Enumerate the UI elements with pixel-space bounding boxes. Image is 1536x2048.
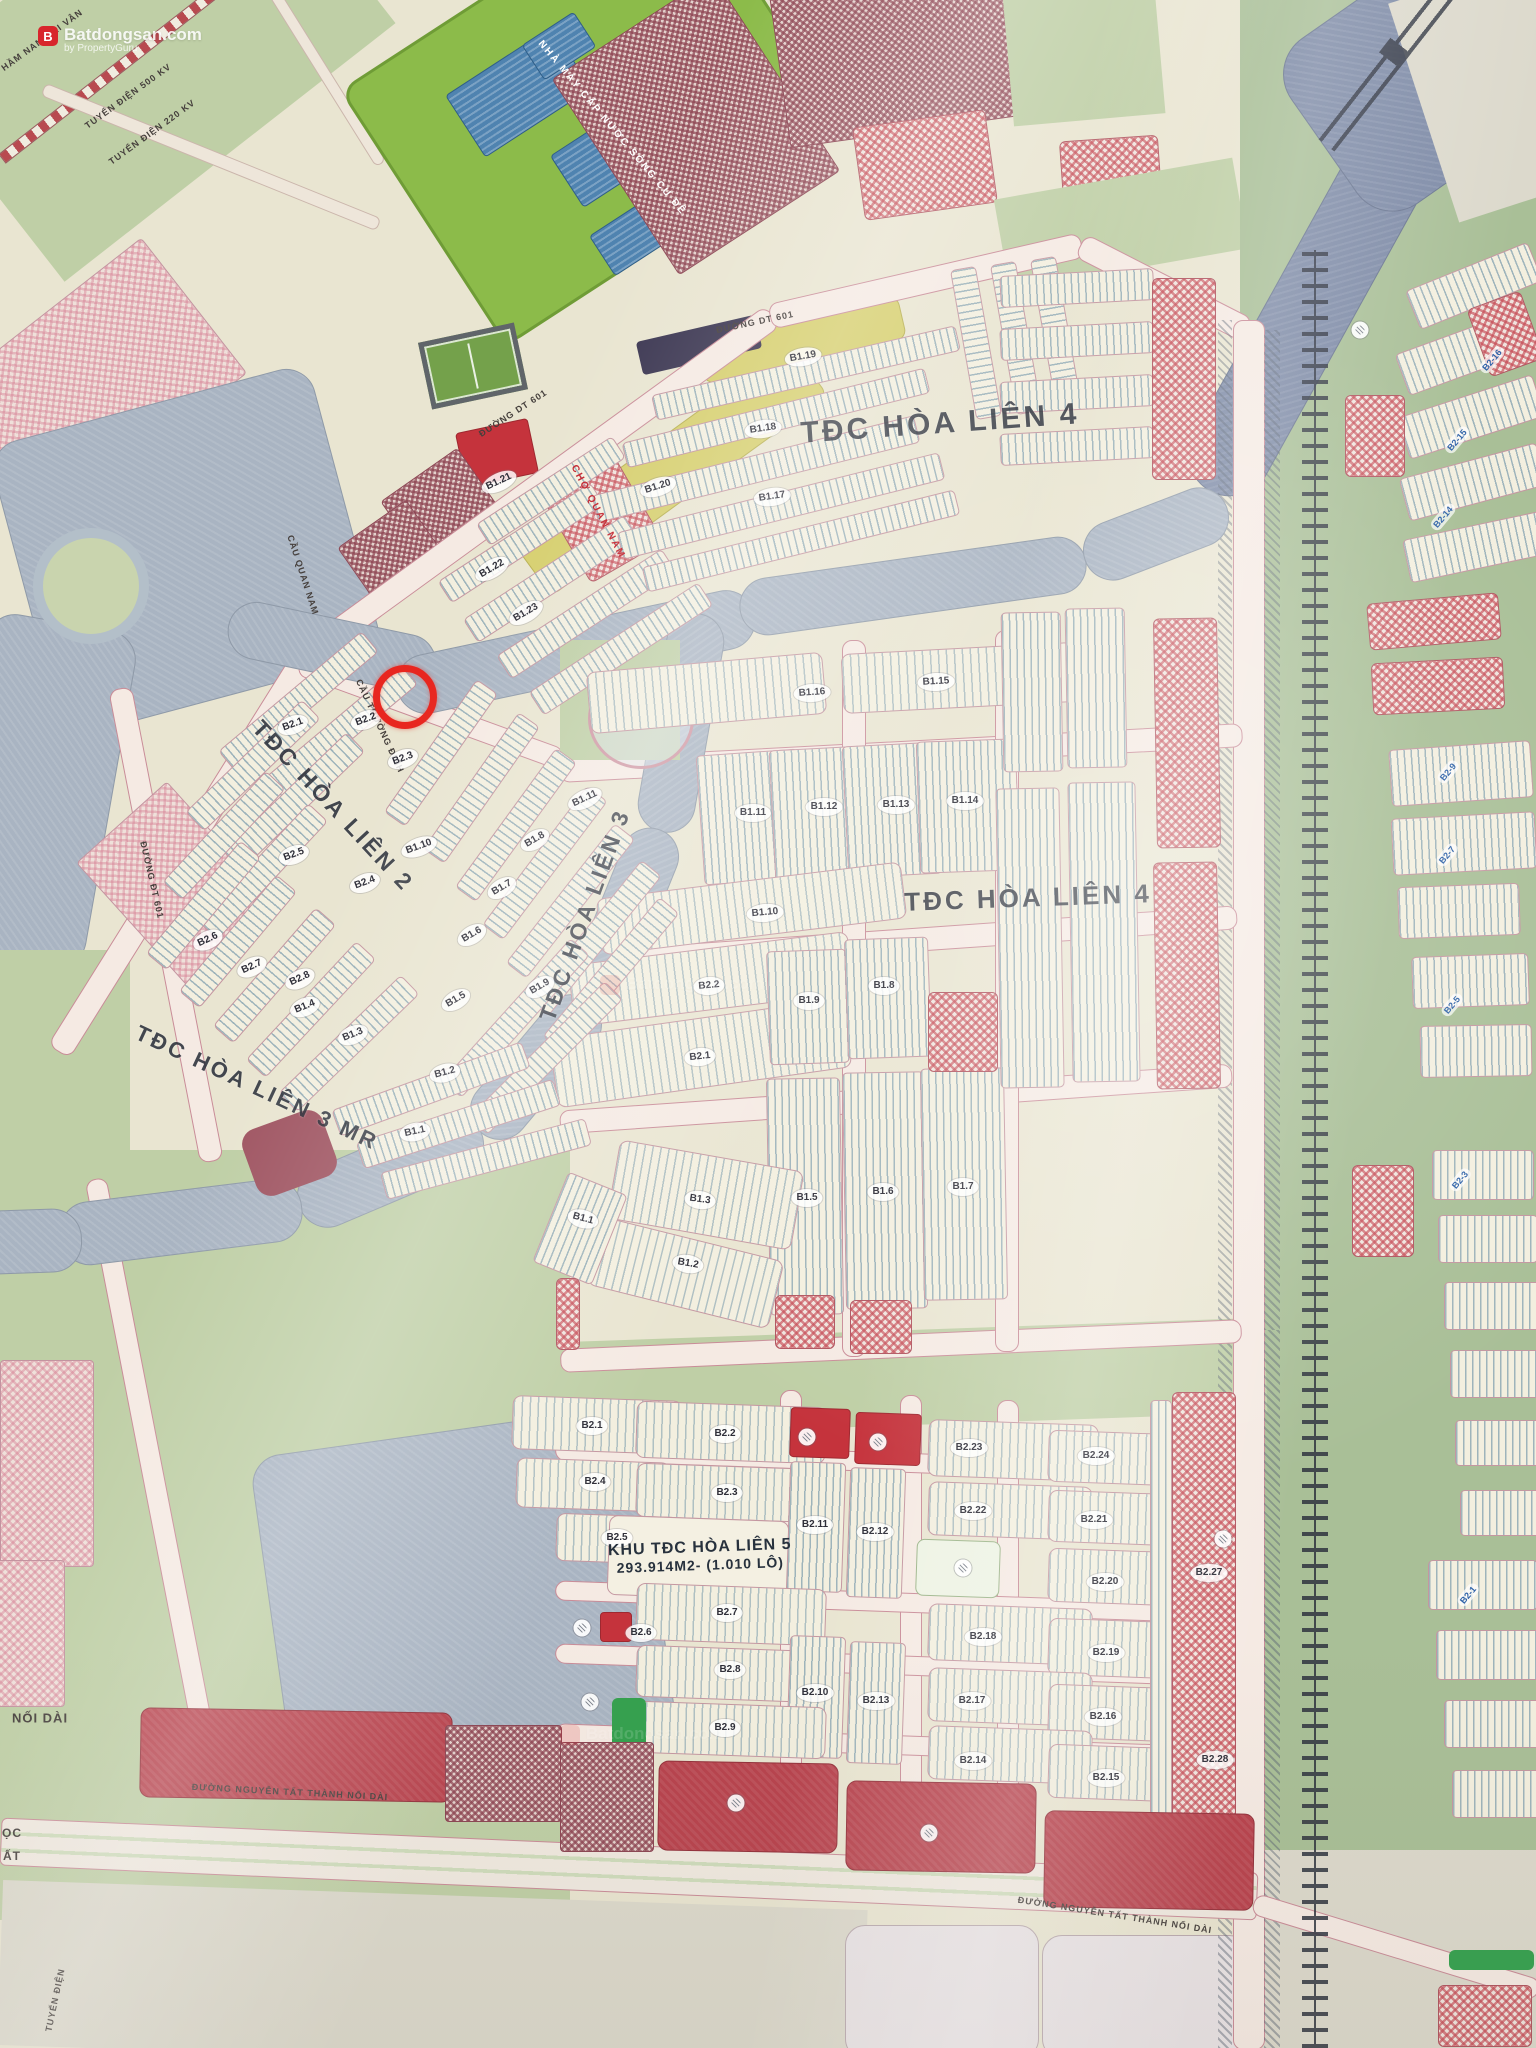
block-label: B2.7: [711, 1604, 742, 1622]
map-area: [1172, 1392, 1236, 1859]
map-area: [1150, 1400, 1172, 1852]
watermark-brand: Batdongsan.com: [626, 975, 764, 992]
map-area: [0, 1560, 65, 1707]
map-area: [560, 1742, 654, 1852]
map-area: [1264, 330, 1280, 1330]
map-area: [0, 1880, 868, 2048]
map-area: [850, 1300, 912, 1354]
block-label: B1.10: [399, 832, 440, 861]
map-area: [999, 268, 1154, 308]
map-area: [1264, 1330, 1280, 2048]
river-segment: [0, 609, 141, 972]
road-segment: [1233, 320, 1265, 2048]
map-area: [845, 1780, 1037, 1873]
block-label: B2.27: [1191, 1564, 1228, 1582]
map-area: [1438, 1215, 1536, 1263]
map-area: [1391, 811, 1536, 875]
road-label: NỐI DÀI: [12, 1711, 68, 1726]
map-area: [854, 1412, 922, 1466]
facility-circle-icon: [870, 1434, 887, 1451]
block-label: B2.6: [625, 1624, 656, 1642]
watermark-brand: Batdongsan.com: [64, 26, 202, 43]
map-area: [1455, 1420, 1536, 1466]
block-label: B2.18: [965, 1628, 1002, 1646]
watermark-faint: Batdongsan.com: [560, 1725, 724, 1745]
map-area: [1065, 607, 1128, 768]
block-label: B2.8: [714, 1661, 745, 1679]
block-label: B1.13: [878, 796, 915, 814]
map-area: [1152, 278, 1216, 480]
facility-circle-icon: [582, 1694, 599, 1711]
block-label: B1.5: [438, 984, 474, 1015]
block-label: B1.14: [947, 792, 984, 810]
map-area: [657, 1760, 839, 1853]
map-area: [1345, 395, 1405, 477]
map-area: [1371, 657, 1506, 716]
block-label: B2.20: [1087, 1573, 1124, 1591]
block-label: B1.5: [791, 1189, 822, 1207]
block-label: B2.2: [709, 1425, 740, 1443]
map-area: [999, 321, 1154, 361]
block-label: B2.24: [1078, 1447, 1115, 1465]
map-area: [1411, 953, 1530, 1009]
map-area: [928, 992, 998, 1072]
watermark-logo-icon: B: [38, 26, 58, 46]
road-label: ỌC: [2, 1826, 22, 1840]
facility-circle-icon: [574, 1620, 591, 1637]
map-area: [844, 937, 932, 1060]
block-label: B2.14: [955, 1752, 992, 1770]
map-area: [1003, 0, 1166, 126]
map-area: [1444, 1700, 1536, 1748]
watermark-brand: Batdongsan.com: [586, 1725, 724, 1742]
map-area: [1438, 1985, 1532, 2047]
facility-circle-icon: [1215, 1531, 1232, 1548]
block-label: B1.11: [735, 804, 771, 822]
map-area: [1153, 617, 1221, 848]
map-area: [775, 1295, 835, 1349]
railway-track: [1302, 250, 1328, 2048]
block-label: B2.11: [797, 1516, 833, 1534]
map-area: [1444, 1282, 1536, 1330]
location-marker-circle: [373, 665, 437, 729]
watermark: B Batdongsan.com by PropertyGuru: [38, 26, 202, 54]
map-area: [1001, 611, 1064, 772]
block-label: B1.9: [793, 992, 824, 1010]
map-area: [556, 1278, 580, 1350]
road-label: ẤT: [3, 1849, 21, 1863]
facility-circle-icon: [728, 1795, 745, 1812]
map-area: [1432, 1150, 1534, 1200]
hl5-title-block: KHU TĐC HÒA LIÊN 5 293.914M2- (1.010 LÔ): [608, 1536, 793, 1576]
block-label: B1.12: [806, 798, 843, 816]
block-label: B2.23: [951, 1439, 988, 1457]
block-label: B2.16: [1085, 1708, 1122, 1726]
block-label: B1.6: [867, 1183, 898, 1201]
map-area: [1452, 1770, 1536, 1818]
map-area: [1436, 1630, 1536, 1680]
block-label: B2.3: [711, 1484, 742, 1502]
block-label: B2.4: [579, 1473, 610, 1491]
watermark-sub: by PropertyGuru: [64, 43, 202, 54]
facility-circle-icon: [1352, 322, 1369, 339]
facility-circle-icon: [955, 1560, 972, 1577]
block-label: B2.17: [954, 1692, 991, 1710]
map-area: [1450, 1350, 1536, 1398]
watermark-logo-icon: [560, 1725, 580, 1745]
map-area: [1428, 1560, 1536, 1610]
watermark-faint: Batdongsan.com: [600, 975, 764, 995]
block-label: B1.7: [947, 1178, 978, 1196]
block-label: B1.8: [868, 977, 899, 995]
block-label: B2.15: [1088, 1769, 1125, 1787]
block-label: B2.22: [955, 1502, 992, 1520]
block-label: B2.13: [858, 1692, 895, 1710]
map-area: [845, 1925, 1039, 2048]
map-area: [1449, 1950, 1534, 1970]
block-label: B2.1: [576, 1417, 607, 1435]
map-area: [1043, 1810, 1255, 1911]
map-area: [445, 1725, 562, 1822]
block-label: B2.10: [797, 1684, 834, 1702]
river-segment: [0, 1208, 83, 1277]
watermark-logo-icon: [600, 975, 620, 995]
river-segment: [1074, 479, 1237, 589]
facility-circle-icon: [921, 1825, 938, 1842]
map-area: [1153, 861, 1221, 1089]
block-label: B2.21: [1076, 1511, 1113, 1529]
map-area: [33, 528, 149, 644]
map-area: [852, 109, 998, 221]
map-area: [995, 787, 1064, 1088]
block-label: B2.12: [857, 1523, 894, 1541]
block-label: B2.28: [1197, 1751, 1234, 1769]
map-area: [1460, 1490, 1536, 1536]
planning-map-photo: TĐC HÒA LIÊN 4TĐC HÒA LIÊN 4TĐC HÒA LIÊN…: [0, 0, 1536, 2048]
map-area: [0, 1360, 94, 1567]
football-field-icon: [418, 323, 528, 410]
facility-circle-icon: [799, 1429, 816, 1446]
map-area: [1388, 740, 1534, 807]
map-area: [1420, 1024, 1533, 1078]
map-area: [1067, 781, 1140, 1082]
map-area: [1397, 883, 1521, 939]
block-label: B2.19: [1088, 1644, 1125, 1662]
map-area: [1352, 1165, 1414, 1257]
